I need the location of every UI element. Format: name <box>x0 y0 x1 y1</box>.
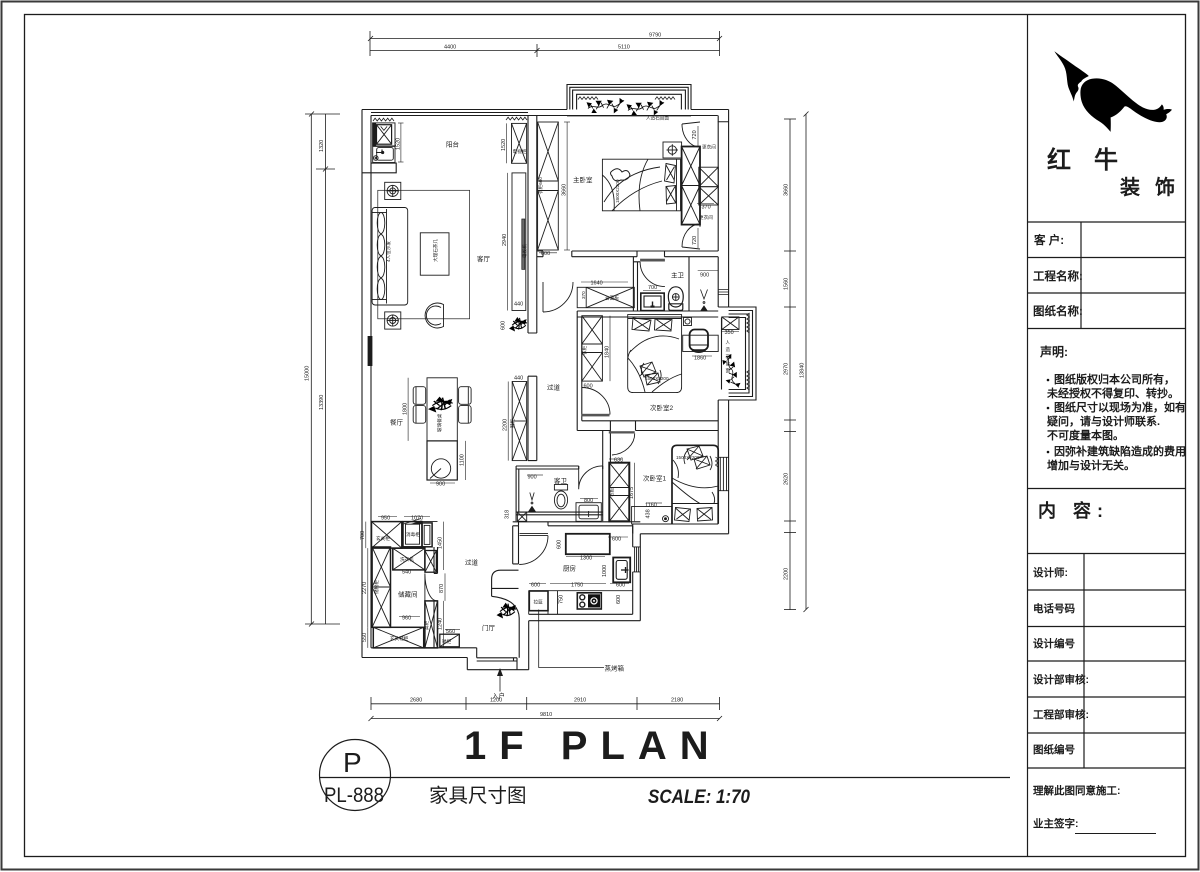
svg-text:业主签字:: 业主签字: <box>1033 817 1079 830</box>
svg-text:更衣间: 更衣间 <box>702 144 716 151</box>
svg-text:1860: 1860 <box>694 356 706 362</box>
svg-text:阳台: 阳台 <box>446 140 459 149</box>
svg-text:1000: 1000 <box>602 565 608 577</box>
svg-text:厨房: 厨房 <box>563 564 576 573</box>
svg-text:台面柜: 台面柜 <box>605 295 619 302</box>
svg-text:客 户:: 客 户: <box>1033 233 1064 247</box>
svg-text:1800X2200: 1800X2200 <box>615 179 620 203</box>
svg-text:3660: 3660 <box>562 184 568 196</box>
svg-text:人: 人 <box>726 340 731 345</box>
svg-text:声明:: 声明: <box>1039 344 1068 359</box>
svg-text:图纸尺寸以现场为准，如有: 图纸尺寸以现场为准，如有 <box>1054 400 1186 414</box>
svg-text:1100: 1100 <box>460 454 466 466</box>
svg-text:720: 720 <box>692 130 698 139</box>
svg-text:餐厅: 餐厅 <box>390 418 404 427</box>
svg-text:大理石茶几: 大理石茶几 <box>432 239 439 262</box>
svg-text:720: 720 <box>692 236 698 245</box>
svg-text:318: 318 <box>505 510 511 519</box>
svg-text:衣柜: 衣柜 <box>609 487 616 497</box>
svg-text:1640: 1640 <box>591 281 603 287</box>
svg-text:人造石台面: 人造石台面 <box>646 115 669 122</box>
svg-text:9790: 9790 <box>649 33 661 39</box>
svg-text:700: 700 <box>648 285 657 291</box>
svg-text:13840: 13840 <box>800 363 806 378</box>
svg-text:玄关柜: 玄关柜 <box>376 535 390 542</box>
svg-text:衣柜: 衣柜 <box>581 345 588 355</box>
svg-text:2620: 2620 <box>784 473 790 485</box>
svg-text:700: 700 <box>360 531 366 540</box>
svg-text:1F PLAN: 1F PLAN <box>464 724 722 768</box>
svg-text:P: P <box>343 747 362 778</box>
svg-text:600: 600 <box>557 540 563 549</box>
svg-text:SCALE: 1:70: SCALE: 1:70 <box>648 786 750 808</box>
svg-text:高柜: 高柜 <box>423 620 430 630</box>
svg-text:次卧室2: 次卧室2 <box>650 403 674 412</box>
svg-text:2180: 2180 <box>671 698 683 704</box>
svg-text:内 容:: 内 容: <box>1038 500 1109 521</box>
svg-text:工程部审核:: 工程部审核: <box>1033 708 1089 721</box>
svg-text:过道: 过道 <box>465 558 479 567</box>
svg-text:600: 600 <box>501 321 507 330</box>
svg-text:800: 800 <box>584 498 593 504</box>
svg-text:630: 630 <box>614 458 623 464</box>
svg-text:2680: 2680 <box>410 698 422 704</box>
svg-text:图纸版权归本公司所有，: 图纸版权归本公司所有， <box>1054 372 1175 386</box>
svg-text:主卫: 主卫 <box>671 271 685 280</box>
svg-text:1500X2200: 1500X2200 <box>645 376 669 381</box>
svg-text:消毒柜: 消毒柜 <box>406 531 420 538</box>
svg-text:电视柜: 电视柜 <box>513 148 527 155</box>
svg-text:540: 540 <box>402 570 411 576</box>
svg-text:1520: 1520 <box>501 139 507 151</box>
svg-text:1840: 1840 <box>605 346 611 358</box>
svg-text:750: 750 <box>559 595 565 604</box>
svg-text:440: 440 <box>514 376 523 382</box>
svg-text:玄关鞋柜: 玄关鞋柜 <box>390 635 409 642</box>
svg-text:3660: 3660 <box>784 184 790 196</box>
svg-text:600: 600 <box>616 595 622 604</box>
svg-text:15000: 15000 <box>305 366 311 381</box>
svg-text:4400: 4400 <box>444 45 456 51</box>
svg-text:2910: 2910 <box>574 698 586 704</box>
svg-text:2940: 2940 <box>502 234 508 246</box>
svg-text:造: 造 <box>726 346 731 353</box>
svg-text:家具尺寸图: 家具尺寸图 <box>429 785 527 807</box>
svg-text:理解此图同意施工:: 理解此图同意施工: <box>1033 784 1121 797</box>
svg-text:不可度量本图。: 不可度量本图。 <box>1047 428 1124 442</box>
svg-text:1500X2200: 1500X2200 <box>676 455 700 460</box>
svg-text:储物柜: 储物柜 <box>373 580 380 594</box>
svg-text:9810: 9810 <box>540 712 552 718</box>
svg-text:更衣间: 更衣间 <box>699 214 713 221</box>
svg-text:600: 600 <box>612 537 621 543</box>
svg-text:增加与设计无关。: 增加与设计无关。 <box>1047 458 1135 472</box>
svg-text:900: 900 <box>700 273 709 279</box>
svg-text:870: 870 <box>439 584 445 593</box>
svg-text:438: 438 <box>646 509 652 518</box>
svg-text:600: 600 <box>541 251 550 257</box>
svg-text:设计部审核:: 设计部审核: <box>1033 673 1089 686</box>
svg-text:1800: 1800 <box>403 403 409 415</box>
svg-text:1320: 1320 <box>319 140 325 152</box>
svg-text:600: 600 <box>584 384 593 390</box>
svg-text:未经授权不得复印、转抄。: 未经授权不得复印、转抄。 <box>1046 386 1179 400</box>
svg-text:电话号码: 电话号码 <box>1033 602 1075 615</box>
svg-text:入户: 入户 <box>492 691 505 700</box>
svg-text:2970: 2970 <box>784 363 790 375</box>
svg-text:次卧室1: 次卧室1 <box>643 474 667 483</box>
svg-text:因弥补建筑缺陷造成的费用: 因弥补建筑缺陷造成的费用 <box>1054 444 1186 458</box>
svg-text:5110: 5110 <box>618 45 630 51</box>
svg-text:560: 560 <box>446 629 455 635</box>
svg-text:2270: 2270 <box>362 582 368 594</box>
svg-text:台: 台 <box>726 360 731 367</box>
svg-text:洗衣机: 洗衣机 <box>400 556 414 563</box>
svg-text:图纸编号: 图纸编号 <box>1033 743 1075 756</box>
svg-text:13390: 13390 <box>319 395 325 410</box>
svg-text:鞋柜: 鞋柜 <box>509 418 516 428</box>
svg-text:装饰: 装饰 <box>1119 175 1190 199</box>
svg-text:图纸名称:: 图纸名称: <box>1033 304 1083 318</box>
svg-text:主卧室: 主卧室 <box>573 175 593 184</box>
svg-text:客厅: 客厅 <box>477 254 491 263</box>
svg-text:1560: 1560 <box>784 278 790 290</box>
svg-text:440: 440 <box>514 302 523 308</box>
svg-text:疑问，请与设计师联系.: 疑问，请与设计师联系. <box>1047 414 1160 428</box>
svg-text:过道: 过道 <box>547 383 561 392</box>
svg-text:1450: 1450 <box>438 537 444 549</box>
svg-text:370: 370 <box>581 291 586 299</box>
svg-text:客卫: 客卫 <box>554 476 568 485</box>
svg-text:350: 350 <box>725 330 734 336</box>
svg-text:拉篮: 拉篮 <box>534 599 544 606</box>
svg-text:550: 550 <box>362 633 368 642</box>
svg-text:2200: 2200 <box>784 568 790 580</box>
svg-text:衣柜600: 衣柜600 <box>537 177 544 194</box>
svg-text:设计编号: 设计编号 <box>1033 637 1075 650</box>
svg-text:2200: 2200 <box>503 419 509 431</box>
svg-text:工程名称:: 工程名称: <box>1033 269 1083 283</box>
svg-text:PL-888: PL-888 <box>324 783 384 807</box>
svg-text:电视机: 电视机 <box>521 244 528 258</box>
svg-text:玻璃餐桌: 玻璃餐桌 <box>436 413 443 432</box>
svg-text:1240: 1240 <box>438 618 444 630</box>
svg-text:储藏间: 储藏间 <box>398 590 418 599</box>
svg-text:红牛: 红牛 <box>1047 146 1141 174</box>
svg-text:1160: 1160 <box>645 503 657 509</box>
svg-text:4人位沙发: 4人位沙发 <box>385 241 392 262</box>
svg-text:900: 900 <box>436 482 445 488</box>
svg-text:370: 370 <box>702 205 711 211</box>
svg-text:设计师:: 设计师: <box>1033 566 1068 579</box>
svg-text:蒸烤箱: 蒸烤箱 <box>605 664 625 673</box>
svg-text:门厅: 门厅 <box>482 623 496 632</box>
svg-text:900: 900 <box>528 475 537 481</box>
svg-text:1675: 1675 <box>629 487 635 499</box>
